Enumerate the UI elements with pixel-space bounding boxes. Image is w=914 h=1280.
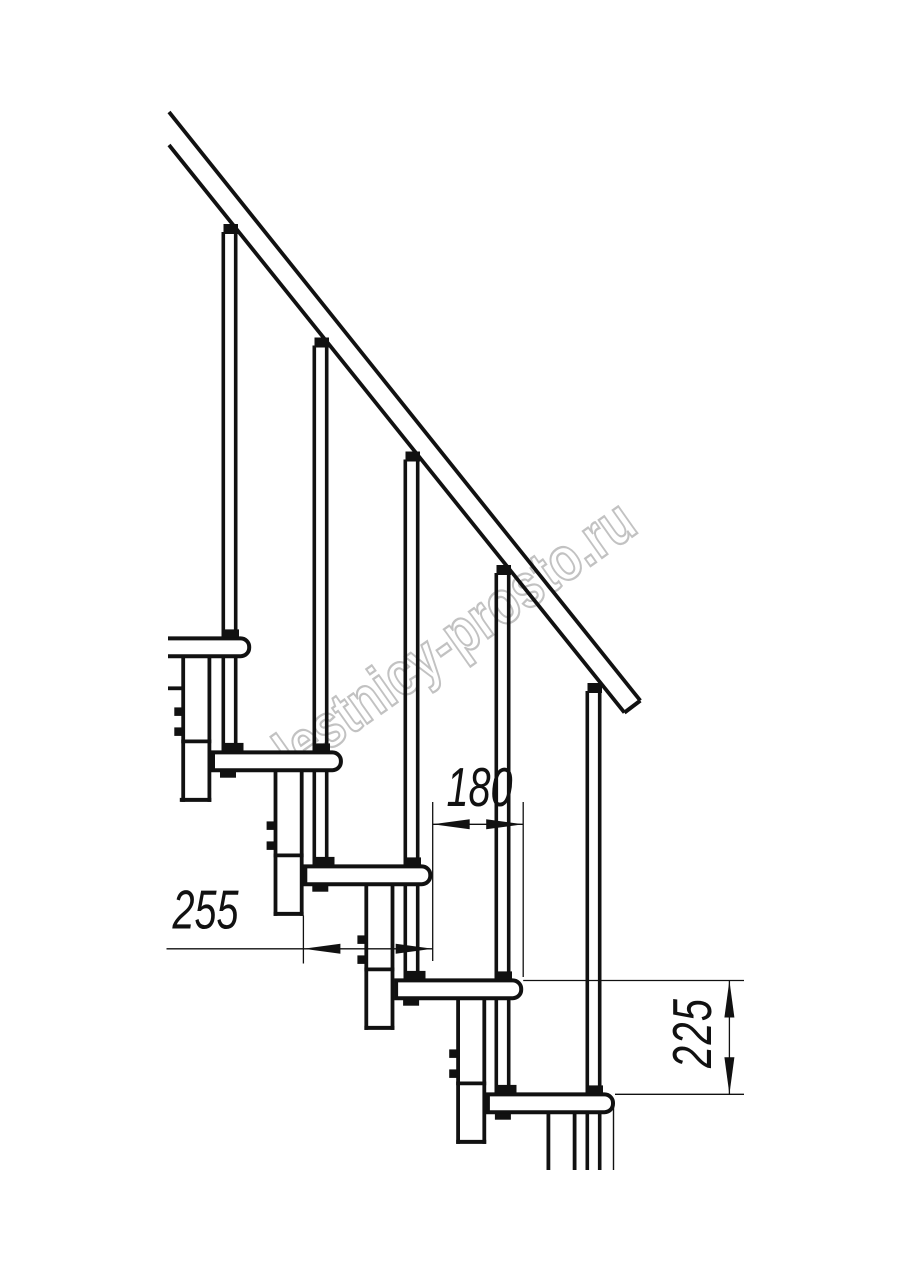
svg-text:180: 180: [447, 756, 513, 818]
svg-text:255: 255: [172, 879, 239, 941]
svg-text:225: 225: [661, 998, 723, 1069]
